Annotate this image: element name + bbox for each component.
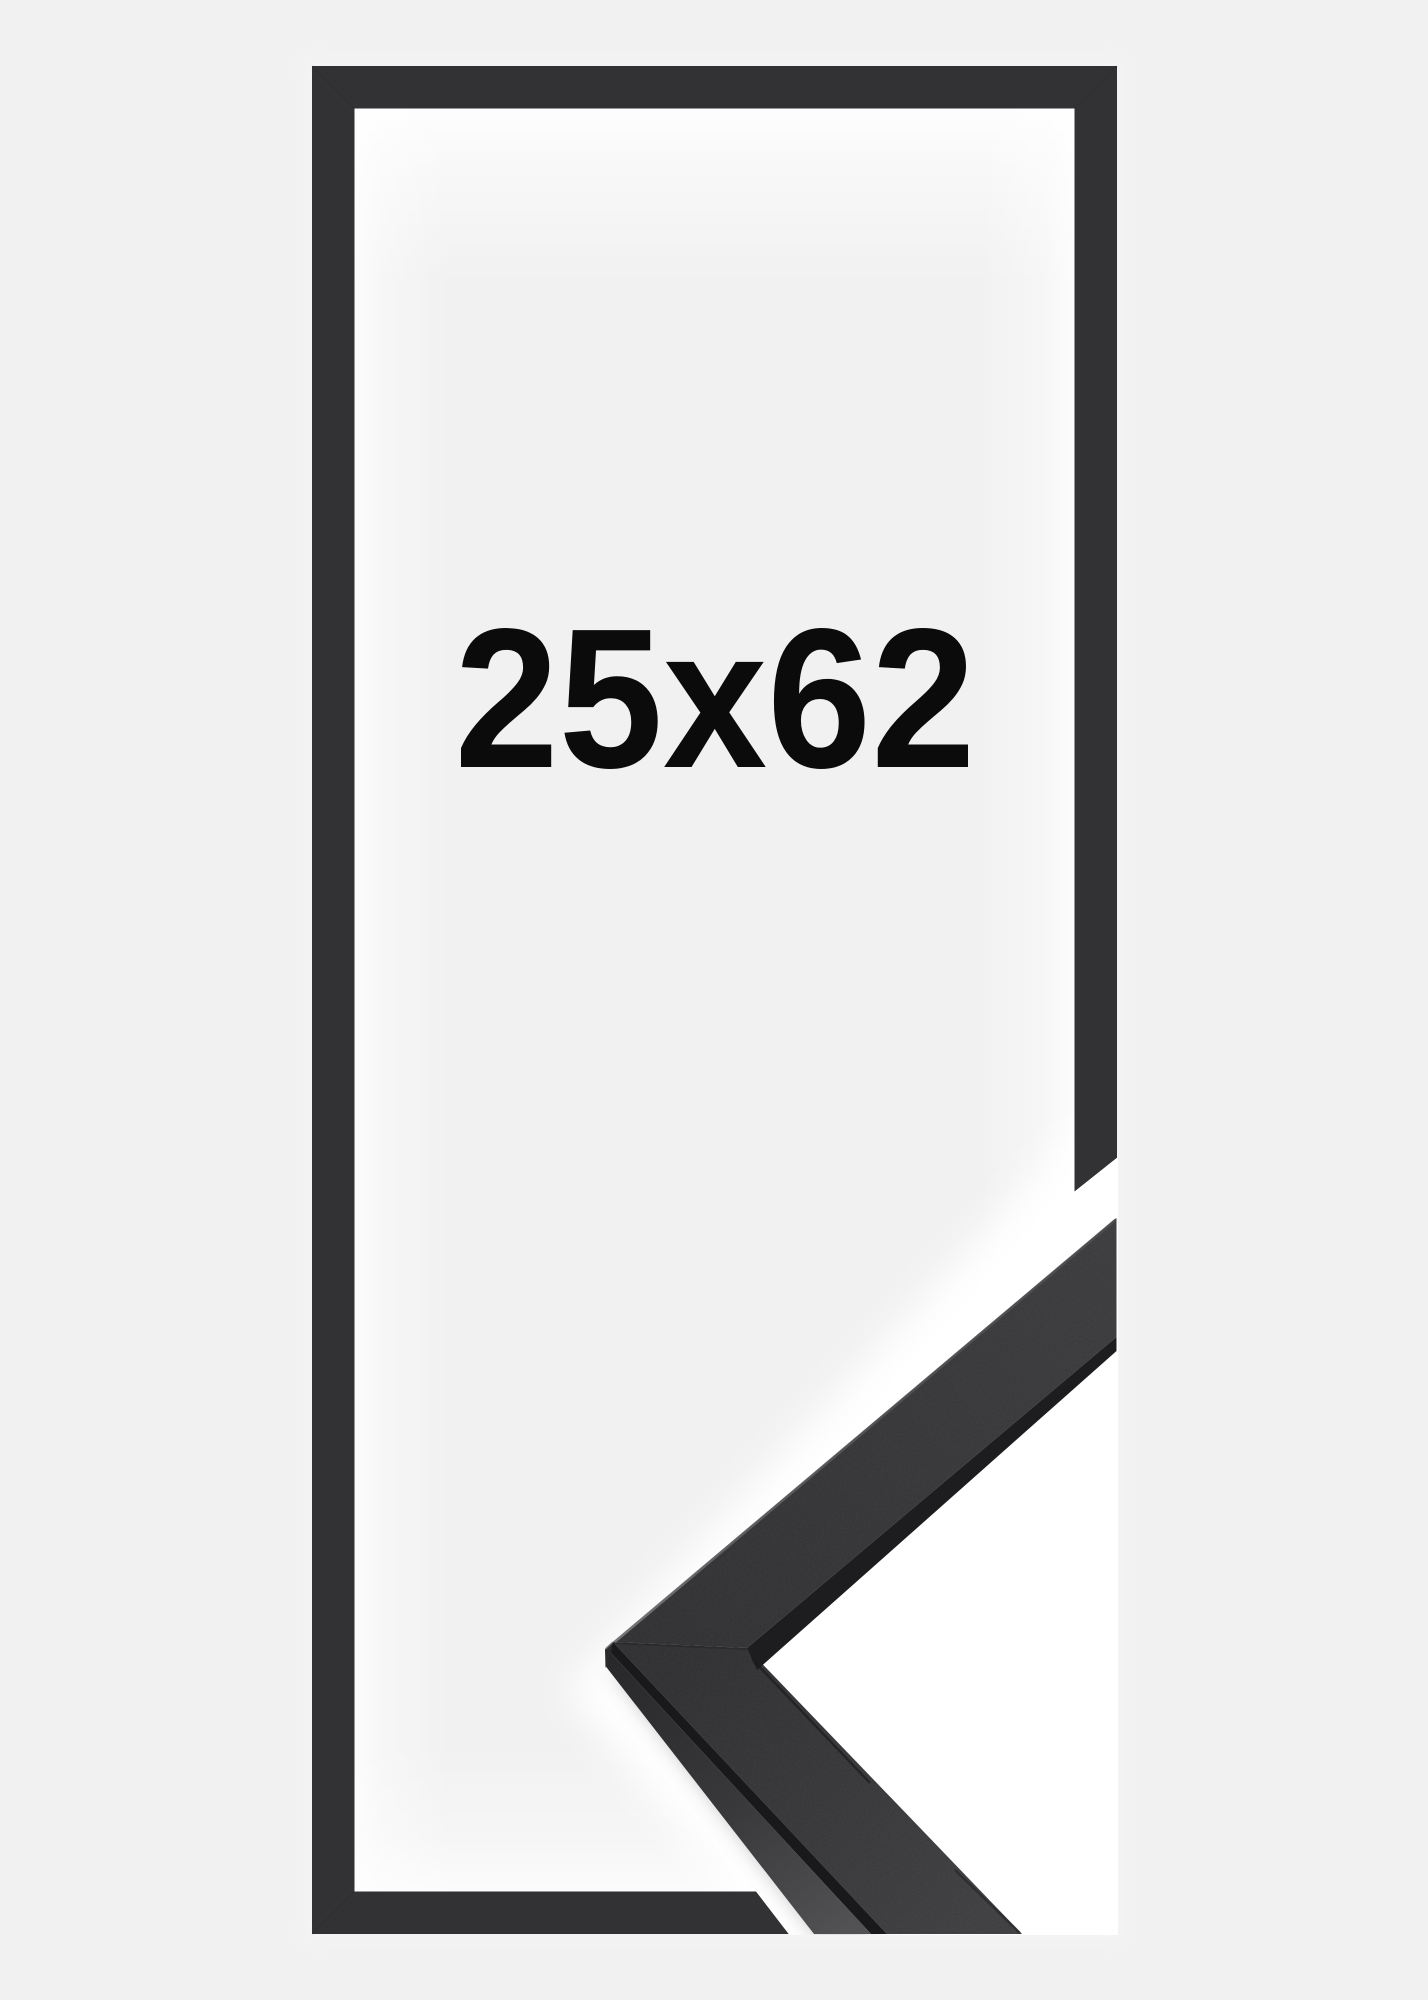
svg-text:25x62: 25x62 [455,588,976,810]
